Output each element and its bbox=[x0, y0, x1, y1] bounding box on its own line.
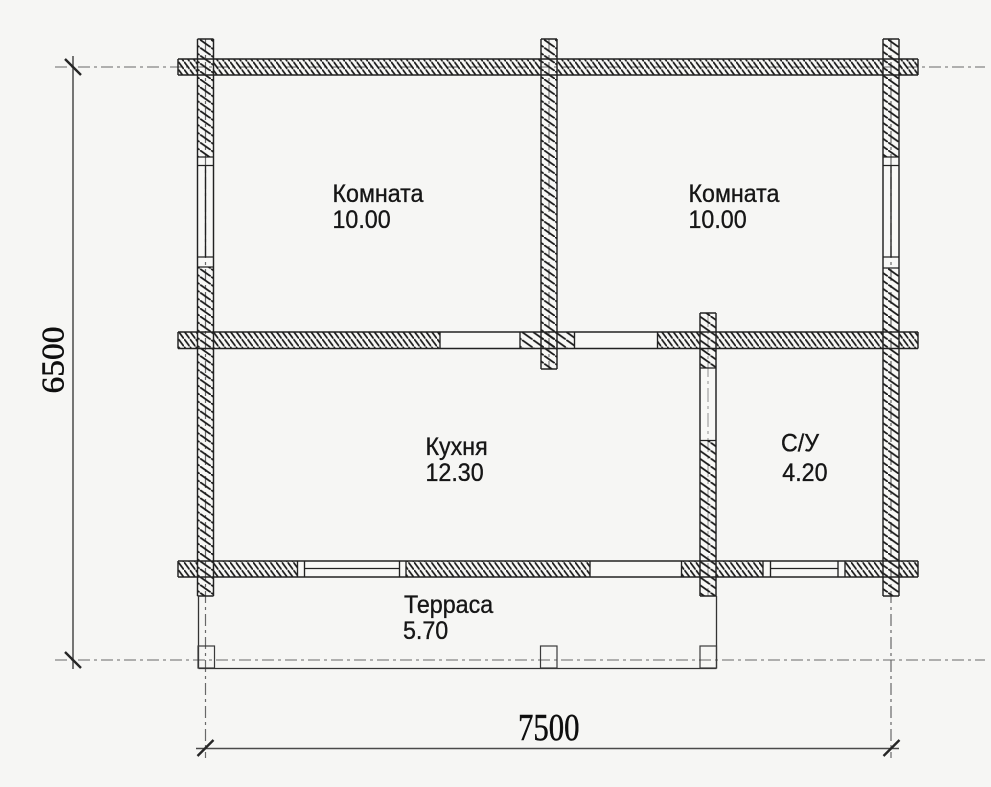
svg-text:10.00: 10.00 bbox=[689, 206, 747, 234]
svg-text:4.20: 4.20 bbox=[782, 459, 827, 487]
svg-text:Кухня: Кухня bbox=[426, 433, 488, 461]
svg-text:6500: 6500 bbox=[36, 327, 71, 394]
svg-text:10.00: 10.00 bbox=[333, 206, 391, 234]
svg-text:Комната: Комната bbox=[689, 180, 781, 208]
svg-text:С/У: С/У bbox=[781, 430, 820, 458]
svg-text:Терраса: Терраса bbox=[404, 591, 494, 619]
svg-text:12.30: 12.30 bbox=[426, 459, 484, 487]
svg-text:Комната: Комната bbox=[333, 180, 425, 208]
svg-text:5.70: 5.70 bbox=[403, 617, 448, 645]
svg-text:7500: 7500 bbox=[518, 707, 580, 749]
